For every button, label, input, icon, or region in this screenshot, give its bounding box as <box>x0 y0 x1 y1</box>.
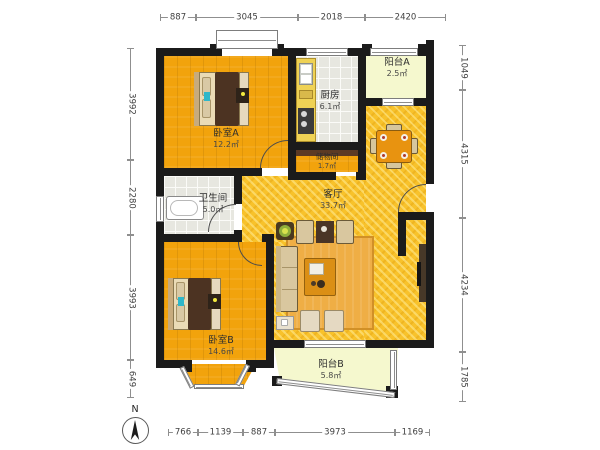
wall-segment <box>426 40 434 184</box>
dimension-value: 1139 <box>208 428 234 437</box>
balcony-b-side-window <box>390 350 397 390</box>
dimension-right: 4234 <box>462 218 463 352</box>
dimension-value: 3045 <box>234 13 260 22</box>
dimension-bottom: 3973 <box>275 432 395 433</box>
dining-dish <box>382 136 385 139</box>
room-area: 5.8㎡ <box>318 371 344 380</box>
dimension-value: 1169 <box>400 428 426 437</box>
kitchen-sink-basin <box>301 75 311 83</box>
balcony-a-sliding-door <box>382 98 414 106</box>
armchair <box>296 220 314 244</box>
floor-plan: 卧室A 12.2㎡ 厨房 6.1㎡ 阳台A 2.5㎡ 储物间 1.7㎡ 卫生间 … <box>0 0 600 450</box>
dimension-bottom: 1169 <box>395 432 430 433</box>
wall-segment <box>288 172 336 180</box>
bay-window-bedroom-a <box>216 30 278 49</box>
dining-dish <box>382 154 385 157</box>
sofa-cushion-line <box>282 289 297 290</box>
dimension-value: 3992 <box>126 91 135 117</box>
balcony-a-window <box>370 48 418 56</box>
dimension-value: 4315 <box>458 141 467 167</box>
bathtub-inner <box>170 200 198 216</box>
compass-north-label: N <box>131 404 138 415</box>
stove-burner <box>301 121 307 127</box>
dimension-top: 2018 <box>298 17 365 18</box>
bed-lamp <box>213 298 217 302</box>
side-table-cup <box>281 319 288 326</box>
room-area: 5.0㎡ <box>199 205 228 214</box>
dimension-left: 2280 <box>130 160 131 235</box>
wall-segment <box>358 98 382 106</box>
bed-pillow <box>176 304 185 322</box>
wall-segment <box>156 222 164 368</box>
wall-segment <box>234 176 242 204</box>
dimension-value: 2420 <box>393 13 419 22</box>
dining-dish <box>403 136 406 139</box>
sofa-cushion-line <box>282 267 297 268</box>
room-label-storage: 储物间 1.7㎡ <box>316 153 339 170</box>
dimension-right: 1785 <box>462 352 463 402</box>
room-name: 卧室A <box>213 129 239 140</box>
wall-segment <box>266 234 274 368</box>
room-label-kitchen: 厨房 6.1㎡ <box>320 91 341 111</box>
wall-segment <box>288 48 296 176</box>
room-name: 阳台B <box>318 360 344 371</box>
dimension-value: 887 <box>249 428 269 437</box>
kitchen-cabinet <box>299 90 313 99</box>
room-area: 2.5㎡ <box>384 69 410 78</box>
wall-segment <box>356 172 366 180</box>
dimension-left: 3993 <box>130 235 131 360</box>
dimension-bottom: 887 <box>243 432 275 433</box>
dimension-right: 4315 <box>462 90 463 218</box>
stove-burner <box>301 111 307 117</box>
wall-segment <box>156 234 238 242</box>
armchair <box>336 220 354 244</box>
room-area: 12.2㎡ <box>213 140 239 149</box>
dimension-value: 649 <box>126 369 135 389</box>
room-area: 14.6㎡ <box>208 347 234 356</box>
kitchen-sink-basin <box>301 65 311 73</box>
tv <box>417 262 421 286</box>
wall-segment <box>366 340 434 348</box>
room-name: 厨房 <box>320 91 341 102</box>
wall-segment <box>156 168 262 176</box>
dimension-left: 3992 <box>130 48 131 160</box>
dimension-value: 766 <box>173 428 193 437</box>
wall-segment <box>426 212 434 348</box>
teapot <box>317 280 325 288</box>
coffee-tray <box>309 263 324 275</box>
room-label-balcony-b: 阳台B 5.8㎡ <box>318 360 344 380</box>
dimension-bottom: 1139 <box>198 432 243 433</box>
wall-segment <box>274 340 304 348</box>
dimension-top: 887 <box>160 17 196 18</box>
kitchen-window <box>306 48 348 56</box>
teacup <box>311 281 316 286</box>
wall-segment <box>398 212 406 256</box>
room-label-bedroom-b: 卧室B 14.6㎡ <box>208 336 234 356</box>
room-area: 33.7㎡ <box>320 201 346 210</box>
sofa-side-table <box>316 221 334 243</box>
bed-lamp <box>241 92 245 96</box>
room-name: 储物间 <box>316 153 339 162</box>
room-label-bedroom-a: 卧室A 12.2㎡ <box>213 129 239 149</box>
room-name: 卧室B <box>208 336 234 347</box>
wall-corner-post <box>418 44 434 56</box>
dimension-value: 1785 <box>458 364 467 390</box>
ottoman <box>300 310 320 332</box>
dimension-bottom: 766 <box>168 432 198 433</box>
room-area: 6.1㎡ <box>320 102 341 111</box>
bed-accent <box>178 297 184 306</box>
ottoman <box>324 310 344 332</box>
dimension-right: 1049 <box>462 45 463 90</box>
table-item <box>321 226 327 232</box>
wall-segment <box>296 142 358 150</box>
dimension-value: 4234 <box>458 272 467 298</box>
sofa-back <box>276 246 281 312</box>
dimension-value: 3973 <box>322 428 348 437</box>
room-name: 客厅 <box>320 190 346 201</box>
balcony-b-sliding-door <box>304 340 366 348</box>
dimension-value: 887 <box>168 13 188 22</box>
dining-dish <box>403 154 406 157</box>
dimension-value: 3993 <box>126 285 135 311</box>
room-label-balcony-a: 阳台A 2.5㎡ <box>384 58 410 78</box>
bathroom-window <box>156 196 164 222</box>
dimension-top: 2420 <box>365 17 446 18</box>
room-name: 阳台A <box>384 58 410 69</box>
room-area: 1.7㎡ <box>316 162 339 170</box>
room-name: 卫生间 <box>199 194 228 205</box>
bed-accent <box>204 92 210 101</box>
room-label-bathroom: 卫生间 5.0㎡ <box>199 194 228 214</box>
bed-pillow <box>202 99 211 118</box>
dimension-value: 2280 <box>126 185 135 211</box>
plant-core <box>282 228 288 234</box>
dimension-top: 3045 <box>196 17 298 18</box>
room-label-living: 客厅 33.7㎡ <box>320 190 346 210</box>
dimension-left: 649 <box>130 360 131 398</box>
wall-segment <box>156 48 214 56</box>
dimension-value: 2018 <box>319 13 345 22</box>
dimension-value: 1049 <box>458 55 467 81</box>
wall-segment <box>358 48 366 180</box>
